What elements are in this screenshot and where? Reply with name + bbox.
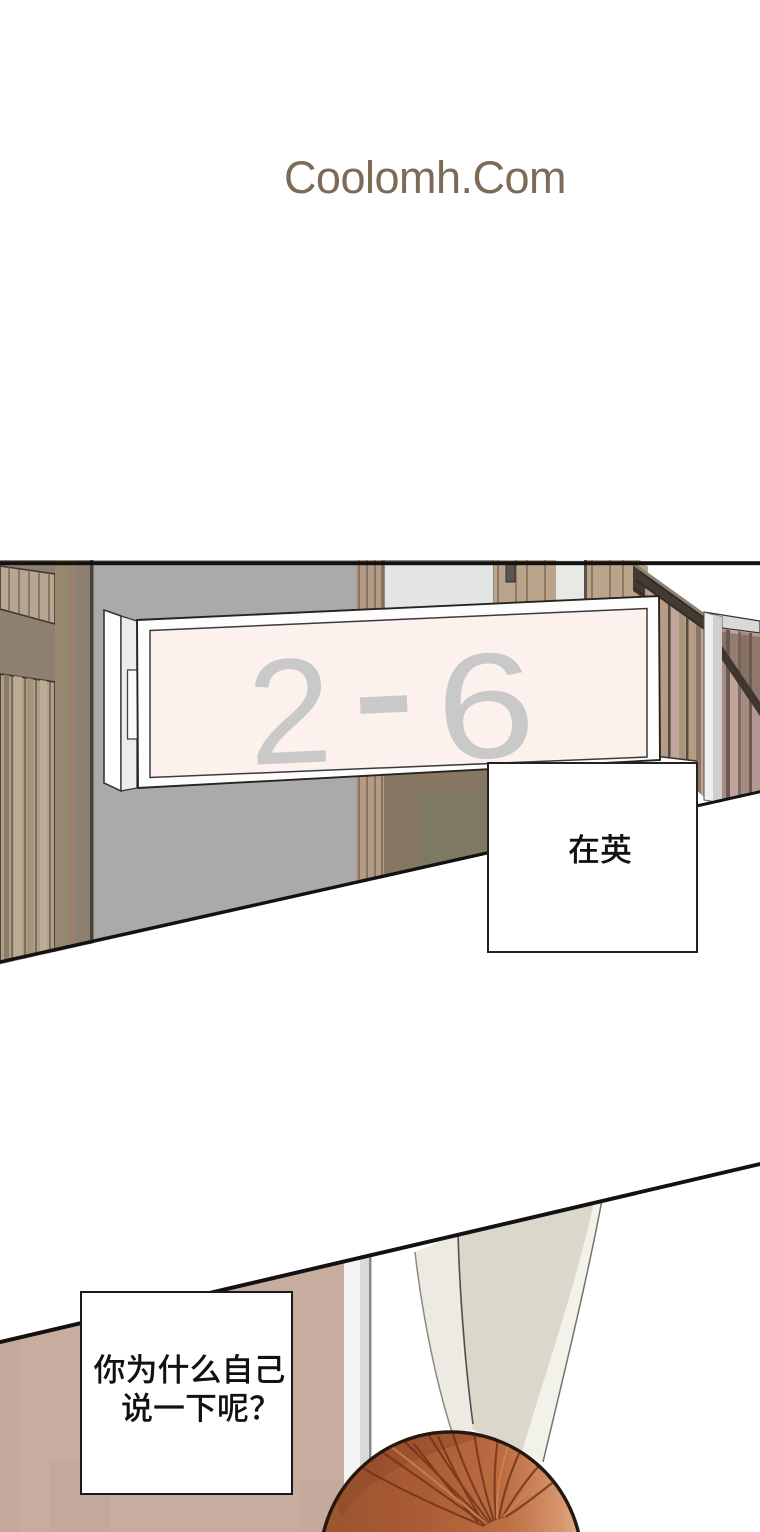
svg-text:2: 2 — [244, 625, 335, 797]
